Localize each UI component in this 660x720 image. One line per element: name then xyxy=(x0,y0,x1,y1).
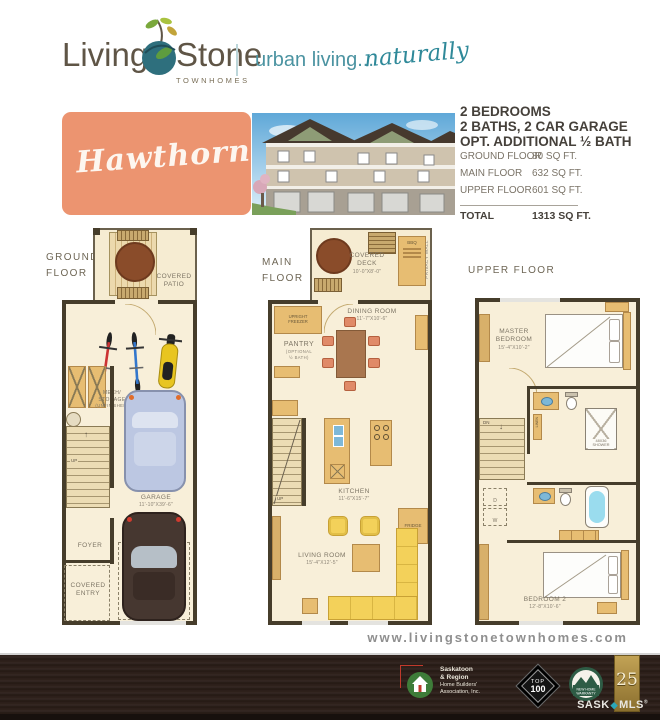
bed-fold-line xyxy=(546,315,624,369)
wall xyxy=(527,386,636,389)
living-label: LIVING ROOM 15'-4"X12'-5" xyxy=(284,552,360,567)
stove-burner xyxy=(383,434,389,440)
stove-burner xyxy=(374,425,380,431)
toilet xyxy=(565,392,578,410)
stairs-diagonal xyxy=(272,418,302,506)
dining-chair xyxy=(322,358,334,368)
sink-oval xyxy=(539,492,551,501)
hba-house-icon xyxy=(406,671,434,699)
stove-counter xyxy=(370,420,392,466)
headboard xyxy=(621,550,629,600)
garage-label: GARAGE 11'-10"X39'-6" xyxy=(121,494,191,509)
patio-chair xyxy=(117,230,149,241)
brand-tagline: urban living... xyxy=(255,49,374,72)
website-url[interactable]: www.livingstonetownhomes.com xyxy=(340,630,628,645)
stairs-up xyxy=(66,426,110,508)
dryer-box: D xyxy=(483,488,507,506)
car-taillight xyxy=(176,395,181,400)
brand-townhomes: TOWNHOMES xyxy=(176,76,250,85)
stairs-up-label: UP xyxy=(276,496,284,501)
sink-basin xyxy=(333,425,344,436)
deck-chair xyxy=(314,278,342,292)
specs-headline-3: OPT. ADDITIONAL ½ BATH xyxy=(460,134,650,149)
counter xyxy=(272,400,298,416)
specs-row: MAIN FLOOR 632 SQ FT. xyxy=(460,168,650,185)
specs-row-label: UPPER FLOOR xyxy=(460,185,532,196)
stove-burner xyxy=(374,434,380,440)
master-label: MASTER BEDROOM 15'-4"X10'-2" xyxy=(483,328,545,351)
bedroom2-label: BEDROOM 2 12'-8"X10'-6" xyxy=(507,596,583,611)
specs-total-value: 1313 SQ FT. xyxy=(532,210,591,222)
window-opening xyxy=(519,621,563,625)
sask-mls-logo: SASK◆MLS® xyxy=(540,699,648,711)
pantry-label: PANTRY (OPTIONAL ½ BATH) xyxy=(272,340,326,360)
linen-label: LINEN xyxy=(535,417,539,427)
ground-patio: COVERED PATIO xyxy=(93,228,197,302)
window-seat xyxy=(415,315,428,350)
car-windshield xyxy=(131,546,177,568)
window-opening xyxy=(500,298,560,302)
window-opening xyxy=(348,621,388,625)
sectional-sofa xyxy=(396,528,418,600)
anniversary-number: 25 xyxy=(615,670,639,690)
specs-divider xyxy=(460,205,578,206)
wall-post xyxy=(190,228,197,235)
garage-door-opening xyxy=(120,621,186,625)
cabinet xyxy=(605,302,629,312)
bbq-grate xyxy=(403,248,421,258)
specs-total-row: TOTAL 1313 SQ FT. xyxy=(460,210,650,226)
specs-row-value: 601 SQ FT. xyxy=(532,185,583,196)
header-divider xyxy=(236,44,238,76)
down-arrow-icon: ↓ xyxy=(499,422,503,431)
dining-chair xyxy=(344,317,356,327)
specs-row-value: 632 SQ FT. xyxy=(532,168,583,179)
specs-row: GROUND FLOOR 80 SQ FT. xyxy=(460,151,650,168)
side-table xyxy=(302,598,318,614)
vanity xyxy=(533,392,559,410)
wardrobe xyxy=(479,544,489,620)
sink-basin xyxy=(333,436,344,447)
car-taillight xyxy=(176,517,181,522)
stove-burner xyxy=(383,425,389,431)
car-light xyxy=(124,390,186,492)
top100-text: TOP 100 xyxy=(523,671,553,701)
covered-entry-label: COVERED ENTRY xyxy=(66,582,110,599)
media-console xyxy=(272,516,281,580)
sink-oval xyxy=(541,397,553,406)
specs-row: UPPER FLOOR 601 SQ FT. xyxy=(460,185,650,202)
upper-floor-title: UPPER FLOOR xyxy=(468,263,555,279)
specs-headline-2: 2 BATHS, 2 CAR GARAGE xyxy=(460,119,650,134)
wall xyxy=(527,482,636,485)
sectional-sofa xyxy=(328,596,418,620)
privacy-wall-label: PRIVACY WALL xyxy=(424,240,429,279)
car-roof xyxy=(134,432,176,466)
linen-closet: LINEN xyxy=(533,414,542,440)
specs-block: 2 BEDROOMS 2 BATHS, 2 CAR GARAGE OPT. AD… xyxy=(460,104,650,149)
shower: 48X36 SHOWER xyxy=(585,408,617,450)
wall xyxy=(527,386,530,454)
hba-text: Saskatoon & Region Home Builders' Associ… xyxy=(440,666,480,696)
specs-row-label: GROUND FLOOR xyxy=(460,151,542,162)
specs-headline-1: 2 BEDROOMS xyxy=(460,104,650,119)
wall xyxy=(507,540,636,543)
bed-fold-line xyxy=(544,553,622,599)
bbq-label: BBQ xyxy=(399,240,425,245)
window-opening xyxy=(302,621,330,625)
flyer-page: Living Stone TOWNHOMES urban living... n… xyxy=(0,0,660,720)
new-home-warranty-logo: NEW HOME WARRANTY xyxy=(568,666,604,702)
car-taillight xyxy=(129,395,134,400)
model-name: Hawthorn xyxy=(75,134,237,180)
townhome-photo xyxy=(252,113,455,215)
hba-logo: Saskatoon & Region Home Builders' Associ… xyxy=(400,663,510,711)
wall xyxy=(302,418,306,506)
dining-label: DINING ROOM 11'-7"X10'-6" xyxy=(330,308,414,323)
ground-floor-plan: MECH/ STORAGE (UNFINISHED) UP ↑ GARAGE 1… xyxy=(62,300,197,625)
deck-label: COVERED DECK 10'-0"X8'-0" xyxy=(338,252,396,275)
pantry-shelf xyxy=(274,366,300,378)
footer-bottom-strip xyxy=(0,714,660,720)
specs-row-value: 80 SQ FT. xyxy=(532,151,577,162)
toilet-bowl xyxy=(560,493,571,506)
brand-stone: Stone xyxy=(176,36,262,74)
stairs-down-label: DN xyxy=(482,420,491,425)
specs-row-label: MAIN FLOOR xyxy=(460,168,522,179)
toilet-bowl xyxy=(566,397,577,410)
deck-shelf xyxy=(368,232,396,254)
dining-chair xyxy=(344,381,356,391)
shower-label: 48X36 SHOWER xyxy=(586,439,616,448)
armchair xyxy=(328,516,348,536)
model-banner: Hawthorn xyxy=(62,112,251,215)
water-heater xyxy=(66,412,81,427)
kitchen-island xyxy=(324,418,350,484)
main-floor-plan: UPRIGHT FREEZER PANTRY (OPTIONAL ½ BATH)… xyxy=(268,300,432,625)
foyer-label: FOYER xyxy=(70,542,110,550)
warranty-text: WARRANTY xyxy=(576,692,596,696)
patio-table xyxy=(115,242,155,282)
up-arrow-icon: ↑ xyxy=(84,430,88,439)
upright-freezer: UPRIGHT FREEZER xyxy=(274,306,322,334)
dining-table xyxy=(336,330,366,378)
bbq-grill: BBQ xyxy=(398,236,426,286)
bathtub xyxy=(585,486,609,528)
armchair xyxy=(360,516,380,536)
master-bed xyxy=(545,314,623,368)
vanity xyxy=(533,488,555,504)
car-roof xyxy=(133,572,175,600)
washer-box: W xyxy=(483,508,507,526)
specs-table: GROUND FLOOR 80 SQ FT. MAIN FLOOR 632 SQ… xyxy=(460,151,650,226)
island-cabinet xyxy=(330,464,345,479)
upper-floor-plan: MASTER BEDROOM 15'-4"X10'-2" 48X36 SHOWE… xyxy=(475,298,640,625)
main-floor-title: MAIN FLOOR xyxy=(262,255,303,287)
dining-chair xyxy=(322,336,334,346)
footer-wood-bar: Saskatoon & Region Home Builders' Associ… xyxy=(0,655,660,720)
headboard xyxy=(623,312,631,370)
dining-chair xyxy=(368,358,380,368)
bathtub-water xyxy=(589,491,605,523)
specs-total-label: TOTAL xyxy=(460,210,494,222)
car-dark xyxy=(122,512,186,621)
patio-chair xyxy=(117,287,149,299)
toilet xyxy=(559,488,572,506)
nightstand xyxy=(597,602,617,614)
stairs-up-label: UP xyxy=(70,458,78,463)
car-taillight xyxy=(127,517,132,522)
kitchen-label: KITCHEN 11'-6"X15'-7" xyxy=(316,488,392,503)
brand-tagline-script: naturally xyxy=(363,37,470,72)
mls-diamond-icon: ◆ xyxy=(610,700,619,710)
bedroom2-bed xyxy=(543,552,621,598)
ground-floor-title: GROUND FLOOR xyxy=(46,250,99,282)
dining-chair xyxy=(368,336,380,346)
wall xyxy=(110,366,114,488)
wall xyxy=(66,560,114,563)
wall xyxy=(110,518,114,564)
main-deck: BBQ COVERED DECK 10'-0"X8'-0" PRIVACY WA… xyxy=(310,228,432,302)
car-windshield xyxy=(132,412,178,428)
wall-post xyxy=(93,228,100,235)
